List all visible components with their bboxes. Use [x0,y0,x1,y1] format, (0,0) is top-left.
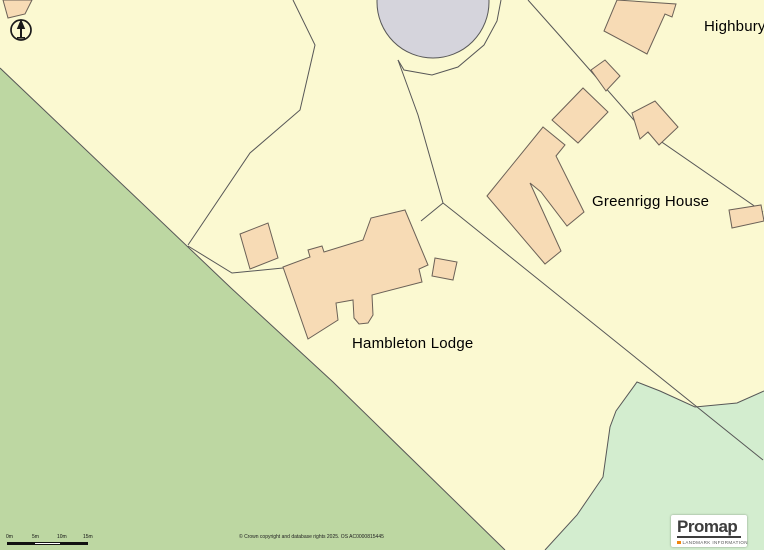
scale-bar: 0m 5m 10m 15m [7,534,91,546]
highbury-label: Highbury [704,18,764,35]
hambleton-lodge-house [283,210,428,339]
map-canvas[interactable] [0,0,764,550]
greenrigg-outbuilding-nw [552,88,608,143]
scale-segment [61,542,88,545]
scale-bar-segments [7,542,88,545]
greenrigg-house-building [487,127,584,264]
hambleton-lodge-label: Hambleton Lodge [352,335,473,352]
track-west-line [188,0,315,245]
greenrigg-house-label: Greenrigg House [592,193,709,210]
hambleton-outbuilding-east [432,258,457,280]
north-arrow-icon [6,13,36,45]
scale-tick-15m: 15m [83,534,93,540]
scale-tick-10m: 10m [57,534,67,540]
promap-logo: Promap LANDMARK INFORMATION [671,515,747,547]
promap-wordmark: Promap [677,518,741,538]
fence-east-line [421,203,443,221]
scale-tick-5m: 5m [32,534,39,540]
landmark-tagline-text: LANDMARK INFORMATION [683,540,748,545]
copyright-attribution: © Crown copyright and database rights 20… [239,534,384,540]
promap-map-view: Highbury Greenrigg House Hambleton Lodge… [0,0,764,550]
scale-segment [7,542,34,545]
greenrigg-outbuilding-ne [632,101,678,145]
pond [377,0,489,58]
promap-tagline: LANDMARK INFORMATION [677,540,741,545]
hambleton-outbuilding-west [240,223,278,269]
landmark-bullet-icon [677,541,681,545]
highbury-house [604,0,676,54]
greenrigg-outbuilding-n [591,60,620,91]
scale-segment [34,542,61,545]
scale-tick-0m: 0m [6,534,13,540]
outbuilding-se [729,205,764,228]
